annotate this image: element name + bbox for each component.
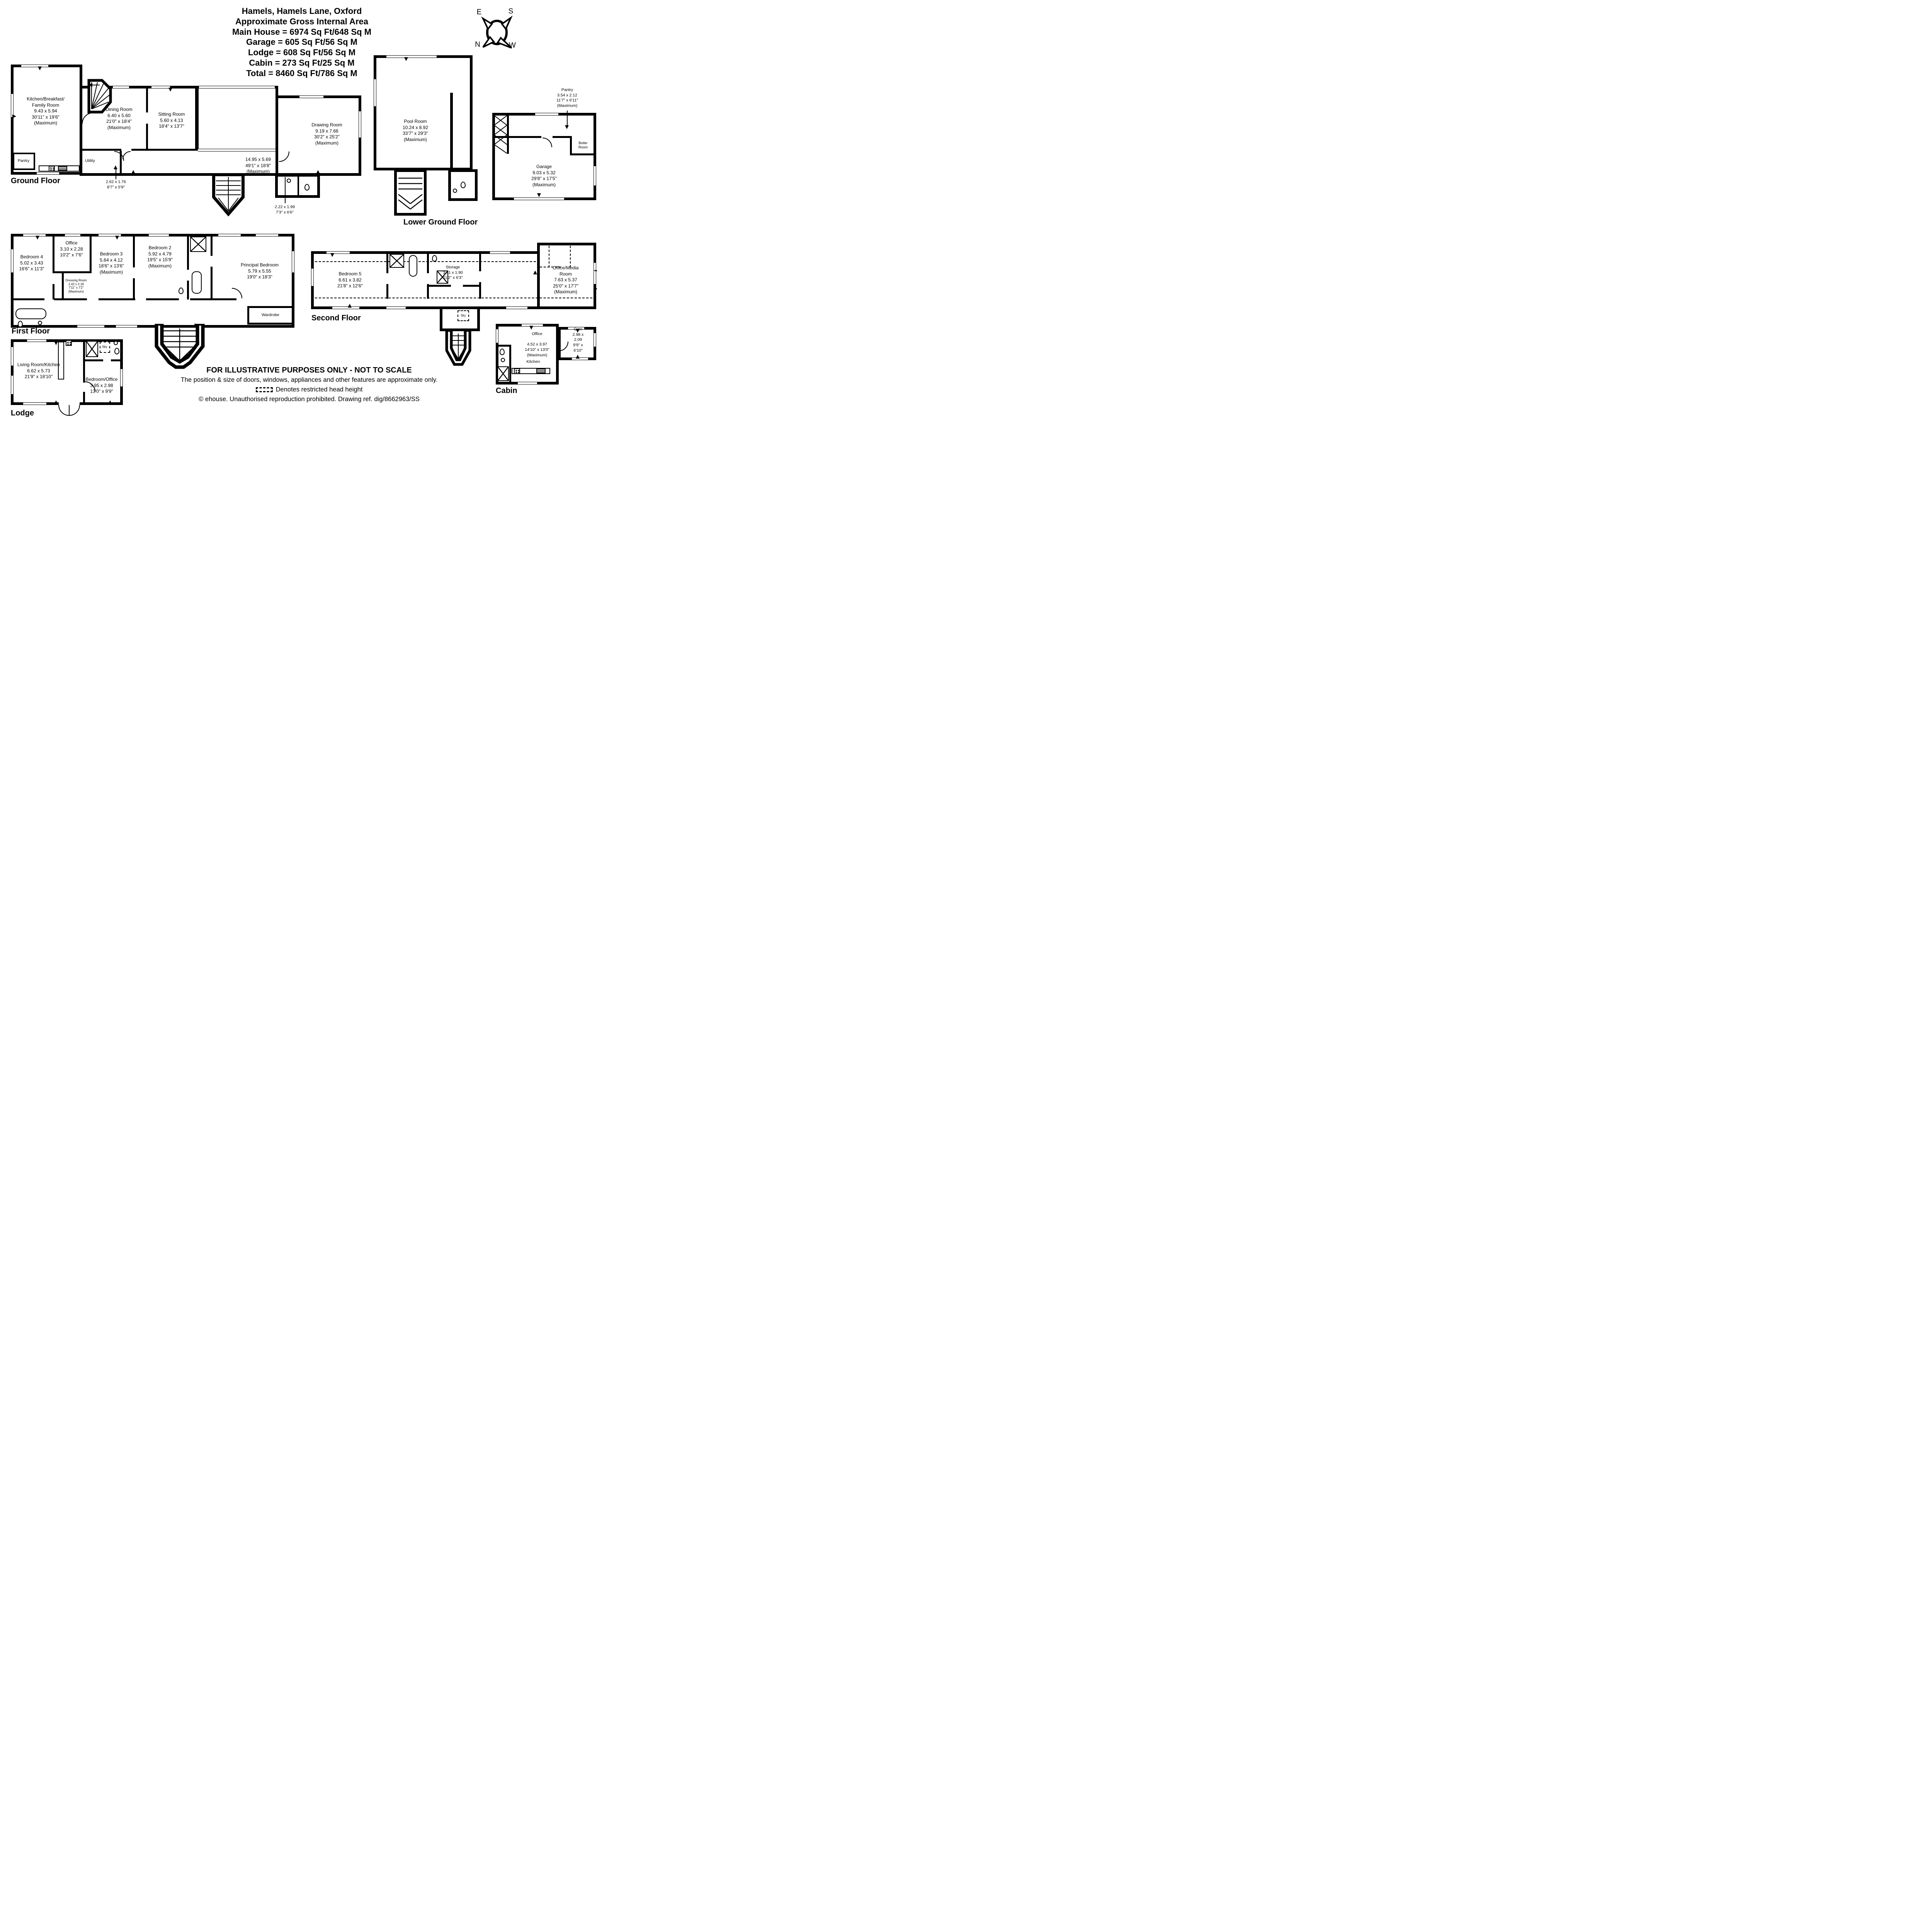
shower-icon (497, 366, 509, 381)
wall (53, 271, 92, 273)
hob-icon (514, 368, 520, 374)
window (11, 249, 14, 272)
wall (570, 153, 595, 155)
door-arc (123, 151, 131, 159)
footer-block: FOR ILLUSTRATIVE PURPOSES ONLY - NOT TO … (128, 366, 491, 403)
window (199, 86, 275, 88)
window (11, 347, 14, 366)
room-label-dressing: Dressing Room 2.42 x 2.18 7'11" x 7'2" (… (65, 279, 87, 293)
window (11, 94, 14, 117)
window (535, 113, 558, 116)
room-label-gym: Gym 2.98 x 2.09 9'9" x 6'10" (569, 327, 588, 353)
wall (211, 267, 213, 299)
wall (133, 237, 135, 267)
door-arc (594, 271, 597, 280)
compass-south-label: S (509, 7, 514, 16)
window (518, 382, 537, 385)
wall (195, 88, 199, 151)
stairs-icon (398, 173, 423, 213)
toilet-icon (18, 321, 23, 327)
wall (62, 273, 64, 299)
wall (450, 93, 453, 169)
door-marker (537, 193, 541, 197)
wall (14, 298, 44, 300)
room-label-pantry: Pantry (18, 158, 29, 164)
room-label-principal: Principal Bedroom 5.79 x 5.55 19'0" x 18… (241, 262, 279, 281)
door-marker (54, 341, 58, 345)
entrance-steps-icon (212, 173, 245, 216)
wall (187, 281, 189, 299)
floor-title-first: First Floor (12, 327, 50, 336)
wall (53, 237, 54, 272)
door-arc (69, 405, 80, 415)
window (23, 402, 46, 405)
wall (190, 298, 236, 300)
window (37, 172, 59, 175)
room-label-storage: Storage 3.41 x 1.90 11'2" x 6'3" (443, 265, 463, 281)
window (386, 306, 406, 309)
wall (54, 298, 87, 300)
door-arc (82, 113, 93, 124)
room-label-pantry2: Pantry 3.54 x 2.12 11'7" x 6'11" (Maximu… (556, 88, 578, 109)
shower-icon (86, 341, 98, 357)
compass-east-label: E (477, 8, 482, 17)
door-marker (38, 66, 42, 70)
door-marker (12, 114, 16, 118)
window (374, 79, 376, 106)
window (572, 357, 588, 360)
room-label-living: Living Room/Kitchen 6.62 x 5.73 21'9" x … (17, 362, 60, 380)
window (386, 55, 437, 58)
footer-legend-text: Denotes restricted head height (276, 386, 363, 393)
door-marker (529, 326, 533, 330)
room-label-cabin-kitchen: Kitchen (526, 359, 540, 365)
window (327, 251, 350, 254)
restricted-head-height-legend-icon (256, 387, 273, 392)
bath-icon (15, 308, 46, 319)
wall (386, 284, 388, 299)
restricted-head-height-line (315, 261, 536, 262)
window (23, 234, 46, 237)
wall (479, 254, 481, 271)
wall (146, 298, 179, 300)
floor-title-cabin: Cabin (496, 386, 517, 395)
window (292, 251, 294, 272)
sink-icon (38, 321, 42, 325)
room-label-cabin-office: Office 4.52 x 3.97 14'10" x 13'0" (Maxim… (525, 332, 549, 358)
room-label-lobby-dims: 2.62 x 1.76 8'7" x 5'9" (106, 179, 126, 190)
room-label-hall-dims: 14.95 x 5.69 49'1" x 18'8" (Maximum) (245, 157, 271, 175)
toilet-icon (461, 182, 466, 188)
wall (427, 285, 451, 287)
door-arc (59, 405, 69, 415)
arrow-up-icon (114, 165, 117, 169)
window (65, 234, 80, 237)
window (116, 325, 137, 328)
main-stairs-icon (155, 324, 205, 369)
compass-north-label: N (475, 41, 480, 49)
wall (298, 176, 299, 197)
arrow-down-icon (565, 125, 569, 129)
wall (90, 237, 92, 272)
wall (146, 124, 148, 151)
window (198, 149, 276, 151)
window (27, 339, 46, 342)
window (77, 325, 104, 328)
room-label-pool: Pool Room 10.24 x 8.92 33'7" x 29'3" (Ma… (403, 119, 428, 143)
wall (146, 88, 148, 112)
room-label-bedroom-office: Bedroom/Office 3.95 x 2.98 13'0" x 9'9" (85, 377, 117, 395)
wall (82, 149, 121, 151)
room-label-bedroom3: Bedroom 3 5.64 x 4.12 18'6" x 13'6" (Max… (99, 251, 124, 275)
window (311, 269, 314, 286)
stairs-hatch-icon (494, 116, 507, 153)
door-marker (404, 57, 408, 61)
wall (496, 345, 511, 347)
leader-line (116, 168, 116, 179)
room-label-sky-lodge: Sky (102, 345, 107, 349)
window (218, 234, 241, 237)
room-label-sky2: Sky (461, 314, 466, 318)
wall (386, 254, 388, 273)
room-label-wc-dims: 2.22 x 1.99 7'3" x 6'6" (275, 204, 295, 215)
window (332, 306, 359, 309)
room-label-sitting: Sitting Room 5.60 x 4.13 18'4" x 13'7" (158, 112, 185, 130)
window (21, 65, 48, 67)
wall (211, 237, 213, 256)
door-arc (543, 138, 552, 147)
restricted-head-height-line (549, 246, 549, 267)
room-label-bedroom5: Bedroom 5 6.61 x 3.82 21'8" x 12'6" (337, 271, 363, 289)
floorplan-canvas: Hamels, Hamels Lane, Oxford Approximate … (0, 0, 597, 422)
door-marker (108, 400, 112, 404)
floor-title-second: Second Floor (311, 314, 361, 323)
bath-icon (409, 255, 417, 277)
wall (427, 254, 429, 273)
window (151, 86, 170, 88)
sink-unit-icon (536, 369, 546, 373)
compass-west-label: W (509, 41, 516, 50)
wall (131, 149, 197, 151)
wall (570, 136, 572, 155)
room-label-dining: Dining Room 6.40 x 5.60 21'0" x 18'4" (M… (105, 107, 132, 131)
room-label-office-media: Office/Media Room 7.63 x 5.37 25'0" x 17… (550, 265, 582, 295)
room-label-boiler: Boiler Room (578, 141, 588, 150)
sink-icon (114, 341, 118, 345)
footer-line-4: © ehouse. Unauthorised reproduction proh… (128, 396, 491, 403)
restricted-head-height-line (315, 298, 592, 298)
wall (83, 359, 103, 361)
floor-title-lodge: Lodge (11, 409, 34, 418)
sink-icon (287, 179, 291, 183)
wall (509, 345, 511, 385)
pool-building-outline (374, 55, 473, 170)
floor-title-lower-ground: Lower Ground Floor (403, 218, 478, 227)
wall (111, 359, 121, 361)
toilet-icon (500, 349, 505, 355)
room-label-drawing: Drawing Room 9.19 x 7.66 30'2" x 25'2" (… (311, 122, 342, 146)
sink-icon (453, 189, 457, 193)
hob-icon (49, 166, 55, 172)
wall (53, 284, 54, 299)
wall (463, 285, 481, 287)
toilet-icon (304, 184, 310, 191)
window (506, 306, 527, 309)
hob-icon (66, 340, 72, 346)
window (256, 234, 278, 237)
door-marker (54, 400, 58, 404)
leader-line (285, 177, 286, 203)
wall (83, 361, 85, 383)
room-label-office1: Office 3.10 x 2.28 10'2" x 7'6" (60, 240, 83, 259)
bath-icon (192, 271, 202, 294)
toilet-icon (114, 348, 119, 354)
footer-line-3: Denotes restricted head height (128, 386, 491, 393)
oven-icon (58, 166, 67, 171)
shower-icon (389, 254, 404, 268)
door-opening (59, 402, 80, 405)
shower-icon (190, 237, 206, 252)
wall (553, 136, 571, 138)
window (359, 111, 361, 138)
footer-line-2: The position & size of doors, windows, a… (128, 376, 491, 384)
floor-title-ground: Ground Floor (11, 177, 60, 185)
window (120, 369, 123, 386)
door-arc (559, 342, 568, 351)
door-arc (279, 151, 289, 162)
footer-line-1: FOR ILLUSTRATIVE PURPOSES ONLY - NOT TO … (128, 366, 491, 375)
room-label-bedroom4: Bedroom 4 5.02 x 3.43 16'6" x 11'3" (19, 254, 44, 272)
window (496, 329, 498, 343)
window (149, 234, 169, 237)
wall (133, 278, 135, 299)
toilet-icon (179, 288, 184, 294)
room-label-garage: Garage 9.03 x 5.32 29'8" x 17'5" (Maximu… (531, 164, 557, 188)
door-marker (131, 170, 135, 174)
window (594, 166, 596, 185)
door-marker (168, 88, 172, 92)
door-marker (115, 236, 119, 240)
restricted-head-height-line (570, 246, 571, 267)
window (113, 86, 129, 88)
door-marker (348, 304, 352, 308)
wall (187, 237, 189, 270)
sink-icon (501, 358, 505, 362)
garage-door (514, 197, 564, 200)
stairs-icon (445, 330, 471, 368)
wall (99, 298, 135, 300)
room-label-bedroom2: Bedroom 2 5.92 x 4.79 19'5" x 15'9" (Max… (147, 245, 173, 269)
door-marker (36, 236, 39, 240)
toilet-icon (432, 255, 437, 262)
room-label-wardrobe: Wardrobe (262, 313, 279, 318)
window (490, 251, 510, 254)
door-marker (316, 170, 320, 174)
window (299, 95, 323, 98)
door-marker (330, 253, 334, 257)
door-marker (576, 355, 580, 359)
room-label-utility: Utility (85, 158, 95, 164)
wall (83, 342, 85, 360)
wall (83, 392, 85, 405)
door-marker (533, 271, 537, 274)
door-arc (232, 288, 242, 298)
window (11, 376, 14, 394)
window (594, 333, 596, 347)
wall (507, 114, 509, 154)
door-arc (114, 151, 124, 161)
room-label-kitchen: Kitchen/Breakfast/ Family Room 9.43 x 5.… (27, 96, 64, 126)
